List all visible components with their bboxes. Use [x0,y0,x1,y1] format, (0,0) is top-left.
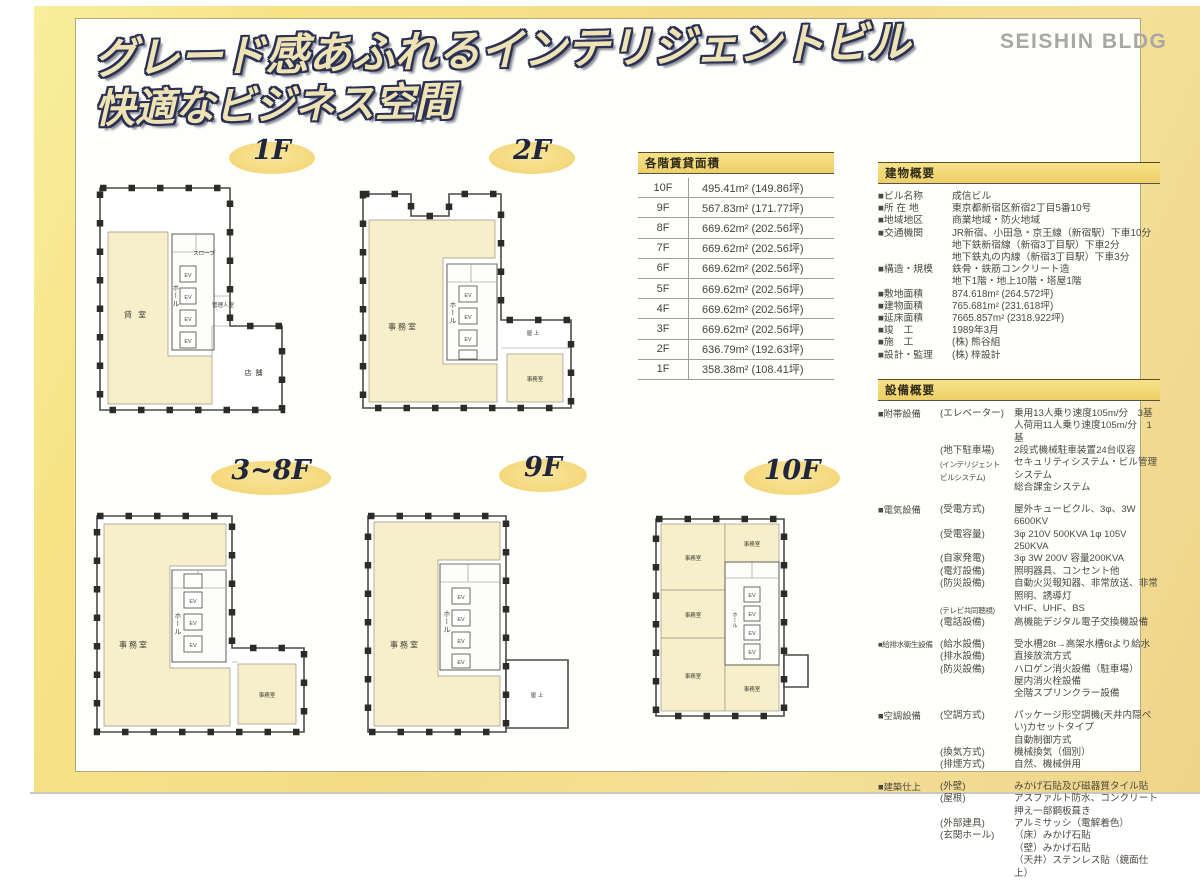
facility-group-label: ■附帯設備 [878,408,940,495]
overview-row: ■所 在 地東京都新宿区新宿2丁目5番10号 [878,203,1160,215]
facility-sub-label: (電灯設備) [940,566,1014,578]
facility-item: (自家発電)3φ 3W 200V 容量200KVA [940,553,1160,565]
room-label-hall: ホール [442,610,450,634]
room-label-hall: ホール [448,301,456,325]
facility-group-label: ■電気設備 [878,504,940,630]
area-cell: 669.62m² (202.56坪) [689,299,834,318]
facility-value: 受水槽28t→高架水槽6tより給水 [1014,639,1160,651]
facility-value: ハロゲン消火設備（駐車場） 屋内消火栓設備 全階スプリンクラー設備 [1014,664,1160,701]
facility-item: (屋根)アスファルト防水、コンクリート押え一部鋼板葺き [940,793,1160,818]
facility-item: (エレベーター)乗用13人乗り速度105m/分 3基 人荷用11人乗り速度105… [940,408,1160,445]
facility-item: (防災設備)ハロゲン消火設備（駐車場） 屋内消火栓設備 全階スプリンクラー設備 [940,664,1160,701]
table-row: 10F495.41m² (149.86坪) [638,178,834,198]
facility-group-hvac: ■空調設備 (空調方式)パッケージ形空調機(天井内隠ぺい)カセットタイプ 自動制… [878,710,1160,772]
room-label-hall: ホール [173,612,181,636]
facility-sub-label: (テレビ共同聴視) [940,603,1014,617]
table-row: 3F669.62m² (202.56坪) [638,319,834,339]
facility-sub-label: (自家発電) [940,553,1014,565]
floor-plan-1f: EV EV EV EV 貸 室 ホール スロープ 管理人室 店 舗 [84,176,314,422]
room-label-slope: スロープ [193,251,215,257]
floor-plan-2f-drawing: EV EV EV [345,158,610,432]
table-row: 5F669.62m² (202.56坪) [638,279,834,299]
facility-value: 3φ 3W 200V 容量200KVA [1014,553,1160,565]
rental-area-table-header: 各階賃貸面積 [638,152,834,174]
facility-sub-label: (防災設備) [940,664,1014,701]
facility-item: (排煙方式)自然、機械併用 [940,759,1160,771]
overview-label: ■設計・監理 [878,350,952,362]
facility-sub-label: (受電方式) [940,504,1014,529]
overview-label: ■地域地区 [878,215,952,227]
svg-text:EV: EV [748,650,756,656]
facility-item: (給水設備)受水槽28t→高架水槽6tより給水 [940,639,1160,651]
overview-row: ■設計・監理(株) 梓設計 [878,350,1160,362]
facility-sub-label: (外部建具) [940,818,1014,830]
svg-text:EV: EV [748,612,756,618]
overview-label: ■交通機関 [878,228,952,265]
facility-sub-label: (エレベーター) [940,408,1014,445]
overview-row: ■敷地面積874.618m² (264.572坪) [878,289,1160,301]
room-label-roof: 屋 上 [527,331,540,337]
table-row: 8F669.62m² (202.56坪) [638,218,834,238]
overview-label: ■敷地面積 [878,289,952,301]
svg-text:EV: EV [457,595,465,601]
svg-text:EV: EV [464,293,472,299]
facility-group-label: ■空調設備 [878,710,940,772]
facility-item: (排水設備)直接放流方式 [940,651,1160,663]
overview-row: ■竣 工1989年3月 [878,325,1160,337]
table-row: 1F358.38m² (108.41坪) [638,360,834,380]
overview-value: 鉄骨・鉄筋コンクリート造 地下1階・地上10階・塔屋1階 [952,264,1160,288]
svg-text:EV: EV [189,599,197,605]
floor-cell: 7F [638,239,689,258]
room-label-roof: 屋 上 [531,693,544,699]
facilities-header: 設備概要 [878,379,1160,401]
facility-value: 自然、機械併用 [1014,759,1160,771]
facility-item: (受電容量)3φ 210V 500KVA 1φ 105V 250KVA [940,529,1160,554]
floor-cell: 6F [638,259,689,278]
room-label-office-5: 事務室 [744,687,761,693]
facility-sub-label: (換気方式) [940,747,1014,759]
overview-label: ■竣 工 [878,325,952,337]
overview-value: 874.618m² (264.572坪) [952,289,1160,301]
facility-sub-label: (排水設備) [940,651,1014,663]
facility-value: 自動火災報知器、非常放送、非常照明、誘導灯 [1014,578,1160,603]
overview-value: (株) 梓設計 [952,350,1160,362]
facility-value: みかげ石貼及び磁器質タイル貼 [1014,781,1160,793]
floor-plan-1f-drawing: EV EV EV EV [84,176,314,422]
facility-value: （床）みかげ石貼 （壁）みかげ石貼 （天井）ステンレス貼（鏡面仕上） [1014,830,1160,880]
facility-value: アスファルト防水、コンクリート押え一部鋼板葺き [1014,793,1160,818]
facility-value: アルミサッシ（電解着色） [1014,818,1160,830]
floor-plan-3-8f-drawing: EV EV EV [82,496,322,748]
floor-cell: 1F [638,360,689,379]
svg-text:EV: EV [457,660,465,666]
floor-plan-9f: EV EV EV EV 事務室 ホール 屋 上 [350,496,605,748]
facility-sub-label: (地下駐車場) [940,445,1014,457]
floor-cell: 2F [638,340,689,359]
overview-row: ■構造・規模鉄骨・鉄筋コンクリート造 地下1階・地上10階・塔屋1階 [878,264,1160,288]
overview-value: 商業地域・防火地域 [952,215,1160,227]
floor-badge-3-8f-label: 3~8F [231,455,310,486]
room-label-hall: ホール [731,612,737,629]
table-row: 2F636.79m² (192.63坪) [638,340,834,360]
floor-cell: 4F [638,299,689,318]
svg-text:EV: EV [189,643,197,649]
overview-label: ■建物面積 [878,301,952,313]
svg-text:EV: EV [184,317,192,323]
facility-value: 乗用13人乗り速度105m/分 3基 人荷用11人乗り速度105m/分 1基 [1014,408,1160,445]
svg-text:EV: EV [457,617,465,623]
facility-group-plumbing: ■給排水衛生設備 (給水設備)受水槽28t→高架水槽6tより給水 (排水設備)直… [878,639,1160,701]
area-cell: 495.41m² (149.86坪) [689,178,834,197]
facility-item: (インテリジェント ビルシステム)セキュリティシステム・ビル管理システム 総合課… [940,457,1160,494]
facility-value: 機械換気（個別） [1014,747,1160,759]
facility-item: (玄関ホール)（床）みかげ石貼 （壁）みかげ石貼 （天井）ステンレス貼（鏡面仕上… [940,830,1160,880]
facility-sub-label: (給水設備) [940,639,1014,651]
overview-label: ■所 在 地 [878,203,952,215]
facility-item: (電話設備)高機能デジタル電子交換機設備 [940,617,1160,629]
building-overview-header: 建物概要 [878,162,1160,184]
facility-value: VHF、UHF、BS [1014,603,1160,617]
table-row: 6F669.62m² (202.56坪) [638,259,834,279]
area-cell: 669.62m² (202.56坪) [689,218,834,237]
svg-text:EV: EV [748,631,756,637]
facility-group-label: ■建築仕上 [878,781,940,880]
facility-sub-label: (空調方式) [940,710,1014,747]
room-label-office2: 事務室 [259,693,276,699]
facility-value: 照明器具、コンセント他 [1014,566,1160,578]
area-cell: 669.62m² (202.56坪) [689,319,834,338]
overview-row: ■交通機関JR新宿、小田急・京王線（新宿駅）下車10分 地下鉄新宿線（新宿3丁目… [878,228,1160,265]
rental-area-table: 各階賃貸面積 10F495.41m² (149.86坪) 9F567.83m² … [638,152,834,380]
facility-sub-label: (受電容量) [940,529,1014,554]
facility-group-finish: ■建築仕上 (外壁)みかげ石貼及び磁器質タイル貼 (屋根)アスファルト防水、コン… [878,781,1160,880]
svg-text:EV: EV [184,339,192,345]
facility-sub-label: (屋根) [940,793,1014,818]
floor-plan-2f: EV EV EV 事務室 ホール 屋 上 事務室 [345,158,610,432]
table-row: 7F669.62m² (202.56坪) [638,239,834,259]
floor-badge-9f-label: 9F [524,452,562,483]
svg-text:EV: EV [184,295,192,301]
room-label-shop: 店 舗 [245,370,264,378]
facility-sub-label: (電話設備) [940,617,1014,629]
facility-value: 2段式機械駐車装置24台収容 [1014,445,1160,457]
room-label-office-4: 事務室 [685,674,702,680]
floor-badge-1f-label: 1F [253,135,291,166]
facility-group-electric: ■電気設備 (受電方式)屋外キュービクル、3φ、3W 6600KV (受電容量)… [878,504,1160,630]
facilities-groups: ■附帯設備 (エレベーター)乗用13人乗り速度105m/分 3基 人荷用11人乗… [878,408,1160,880]
building-overview-rows: ■ビル名称成信ビル ■所 在 地東京都新宿区新宿2丁目5番10号 ■地域地区商業… [878,191,1160,362]
area-cell: 567.83m² (171.77坪) [689,198,834,217]
svg-text:EV: EV [189,621,197,627]
facility-item: (テレビ共同聴視)VHF、UHF、BS [940,603,1160,617]
overview-value: (株) 熊谷組 [952,337,1160,349]
floor-cell: 3F [638,319,689,338]
room-label-office: 事務室 [388,324,418,333]
floor-badge-1f: 1F [229,142,315,174]
area-cell: 669.62m² (202.56坪) [689,259,834,278]
overview-value: JR新宿、小田急・京王線（新宿駅）下車10分 地下鉄新宿線（新宿3丁目駅）下車2… [952,228,1160,265]
facility-item: (外壁)みかげ石貼及び磁器質タイル貼 [940,781,1160,793]
room-label-office-1: 事務室 [685,556,702,562]
floor-badge-10f-label: 10F [764,455,821,486]
area-cell: 636.79m² (192.63坪) [689,340,834,359]
overview-value: 成信ビル [952,191,1160,203]
facility-sub-label: (防災設備) [940,578,1014,603]
overview-label: ■施 工 [878,337,952,349]
floor-badge-3-8f: 3~8F [211,461,331,495]
facility-group-annex: ■附帯設備 (エレベーター)乗用13人乗り速度105m/分 3基 人荷用11人乗… [878,408,1160,495]
floor-cell: 5F [638,279,689,298]
overview-label: ■構造・規模 [878,264,952,288]
facility-item: (地下駐車場)2段式機械駐車装置24台収容 [940,445,1160,457]
room-label-office: 事務室 [119,642,149,651]
room-label-office2: 事務室 [527,377,544,383]
overview-row: ■建物面積765.681m² (231.618坪) [878,301,1160,313]
rental-area-table-rows: 10F495.41m² (149.86坪) 9F567.83m² (171.77… [638,178,834,380]
room-label-office-2: 事務室 [744,542,761,548]
floor-cell: 9F [638,198,689,217]
svg-text:EV: EV [464,315,472,321]
area-cell: 669.62m² (202.56坪) [689,279,834,298]
facility-value: セキュリティシステム・ビル管理システム 総合課金システム [1014,457,1160,494]
right-column: 建物概要 ■ビル名称成信ビル ■所 在 地東京都新宿区新宿2丁目5番10号 ■地… [878,162,1160,889]
facility-value: 屋外キュービクル、3φ、3W 6600KV [1014,504,1160,529]
floor-cell: 10F [638,178,689,197]
overview-row: ■施 工(株) 熊谷組 [878,337,1160,349]
area-cell: 358.38m² (108.41坪) [689,360,834,379]
room-label-office: 事務室 [390,642,420,651]
room-label-hall: ホール [171,284,179,308]
facility-item: (受電方式)屋外キュービクル、3φ、3W 6600KV [940,504,1160,529]
facility-sub-label: (インテリジェント ビルシステム) [940,457,1014,494]
facility-sub-label: (外壁) [940,781,1014,793]
facility-item: (電灯設備)照明器具、コンセント他 [940,566,1160,578]
overview-row: ■ビル名称成信ビル [878,191,1160,203]
floor-cell: 8F [638,218,689,237]
facility-group-label: ■給排水衛生設備 [878,639,940,701]
floor-plan-10f: EV EV EV EV 事務室 事務室 事務室 事務室 事務室 ホール [650,505,850,757]
overview-row: ■地域地区商業地域・防火地域 [878,215,1160,227]
svg-text:EV: EV [748,593,756,599]
room-label-rental: 貸 室 [124,312,148,321]
facility-sub-label: (玄関ホール) [940,830,1014,880]
facility-value: 直接放流方式 [1014,651,1160,663]
facility-item: (防災設備)自動火災報知器、非常放送、非常照明、誘導灯 [940,578,1160,603]
room-label-office-3: 事務室 [685,613,702,619]
facility-value: パッケージ形空調機(天井内隠ぺい)カセットタイプ 自動制御方式 [1014,710,1160,747]
table-row: 4F669.62m² (202.56坪) [638,299,834,319]
overview-label: ■延床面積 [878,313,952,325]
overview-value: 東京都新宿区新宿2丁目5番10号 [952,203,1160,215]
floor-plan-3-8f: EV EV EV 事務室 ホール 事務室 [82,496,322,748]
overview-value: 7665.857m² (2318.922坪) [952,313,1160,325]
floor-badge-10f: 10F [744,461,840,495]
svg-text:EV: EV [457,639,465,645]
floor-badge-9f: 9F [499,459,587,492]
floor-plan-9f-drawing: EV EV EV EV [350,496,605,748]
main-title: グレード感あふれるインテリジェントビル 快適なビジネス空間 [93,17,912,132]
facility-value: 3φ 210V 500KVA 1φ 105V 250KVA [1014,529,1160,554]
table-row: 9F567.83m² (171.77坪) [638,198,834,218]
facility-item: (外部建具)アルミサッシ（電解着色） [940,818,1160,830]
facility-value: 高機能デジタル電子交換機設備 [1014,617,1160,629]
overview-row: ■延床面積7665.857m² (2318.922坪) [878,313,1160,325]
area-cell: 669.62m² (202.56坪) [689,239,834,258]
svg-text:EV: EV [464,337,472,343]
svg-text:EV: EV [184,273,192,279]
overview-value: 1989年3月 [952,325,1160,337]
facility-item: (換気方式)機械換気（個別） [940,747,1160,759]
facility-item: (空調方式)パッケージ形空調機(天井内隠ぺい)カセットタイプ 自動制御方式 [940,710,1160,747]
overview-value: 765.681m² (231.618坪) [952,301,1160,313]
room-label-manager: 管理人室 [212,303,234,309]
overview-label: ■ビル名称 [878,191,952,203]
brand-logo: SEISHIN BLDG [1000,30,1167,54]
facility-sub-label: (排煙方式) [940,759,1014,771]
